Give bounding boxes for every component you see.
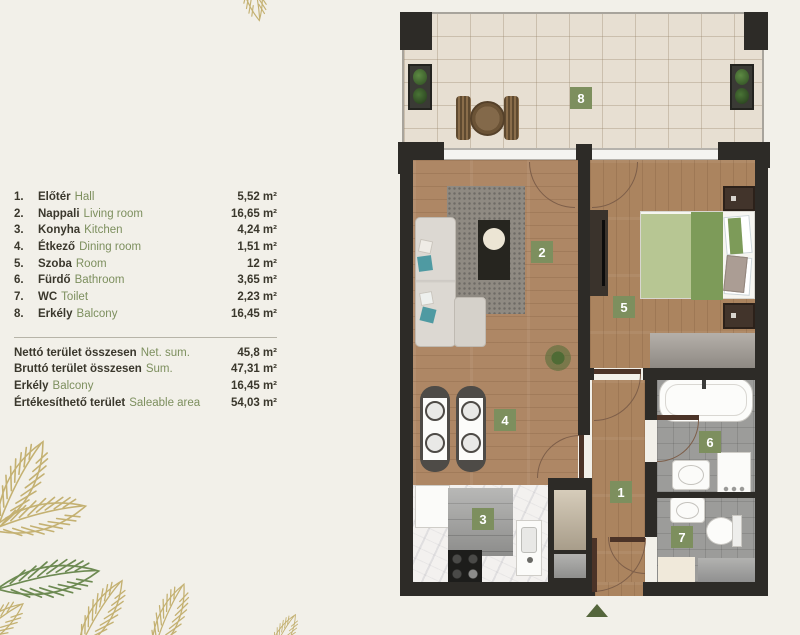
wall-right xyxy=(755,148,768,596)
legend-row-7: 7. WC Toilet 2,23 m² xyxy=(14,291,277,308)
legend-row-5: 5. Szoba Room 12 m² xyxy=(14,258,277,275)
hall-closet xyxy=(554,490,586,550)
balcony-post xyxy=(744,12,768,50)
room-name-hu: Szoba xyxy=(38,258,72,270)
sofa-pillow xyxy=(419,291,434,306)
legend-divider xyxy=(14,337,277,338)
balcony-chair xyxy=(504,96,519,140)
room-name-hu: Nappali xyxy=(38,208,80,220)
bathroom-sink xyxy=(672,460,710,490)
summary-area: 54,03 m² xyxy=(231,397,277,409)
summary-label-hu: Erkély xyxy=(14,380,49,392)
legend-row-2: 2. Nappali Living room 16,65 m² xyxy=(14,208,277,225)
wardrobe xyxy=(650,333,755,368)
room-name-en: Balcony xyxy=(77,308,118,320)
room-label-5: 5 xyxy=(613,296,635,318)
summary-label-hu: Bruttó terület összesen xyxy=(14,363,142,375)
room-label-3: 3 xyxy=(472,508,494,530)
room-number: 2. xyxy=(14,208,38,220)
room-label-2: 2 xyxy=(531,241,553,263)
summary-area: 47,31 m² xyxy=(231,363,277,375)
nightstand xyxy=(723,186,755,211)
summary-label-hu: Értékesíthető terület xyxy=(14,397,125,409)
bed-pillow-taupe xyxy=(723,255,748,293)
room-area: 12 m² xyxy=(247,258,277,270)
floor-plan: 1 2 3 4 5 6 7 8 xyxy=(398,8,770,622)
summary-label-en: Sum. xyxy=(146,363,173,375)
entrance-arrow-icon xyxy=(586,604,608,617)
bed xyxy=(640,211,755,299)
summary-label-en: Balcony xyxy=(53,380,94,392)
tv-cabinet xyxy=(590,210,608,296)
legend-row-3: 3. Konyha Kitchen 4,24 m² xyxy=(14,224,277,241)
plant-icon xyxy=(413,69,427,85)
sink-basin xyxy=(676,502,699,519)
wall-bedroom-hall xyxy=(578,368,594,380)
room-number: 6. xyxy=(14,274,38,286)
plant-icon xyxy=(545,345,571,371)
sofa xyxy=(415,217,456,347)
summary-row-net: Nettó terület összesen Net. sum. 45,8 m² xyxy=(14,347,277,364)
wall-bedroom-bath xyxy=(643,368,755,380)
room-name-en: Dining room xyxy=(79,241,141,253)
plate xyxy=(461,401,481,421)
room-name-hu: WC xyxy=(38,291,57,303)
washing-machine xyxy=(717,452,751,496)
wc-cabinet xyxy=(698,558,755,582)
floorplan-brochure-page: 1. Előtér Hall 5,52 m² 2. Nappali Living… xyxy=(0,0,800,635)
bathtub-inner xyxy=(665,384,747,416)
legend-row-1: 1. Előtér Hall 5,52 m² xyxy=(14,191,277,208)
nightstand xyxy=(723,303,755,329)
legend-row-8: 8. Erkély Balcony 16,45 m² xyxy=(14,308,277,325)
room-legend: 1. Előtér Hall 5,52 m² 2. Nappali Living… xyxy=(14,191,277,414)
room-number: 5. xyxy=(14,258,38,270)
wall-left xyxy=(400,154,413,596)
door-leaf xyxy=(610,537,645,542)
plate xyxy=(425,433,445,453)
room-name-en: Bathroom xyxy=(75,274,125,286)
room-name-en: Toilet xyxy=(61,291,88,303)
legend-row-4: 4. Étkező Dining room 1,51 m² xyxy=(14,241,277,258)
entry-mat xyxy=(658,557,695,582)
room-name-en: Living room xyxy=(84,208,143,220)
summary-area: 16,45 m² xyxy=(231,380,277,392)
balcony-chair xyxy=(456,96,471,140)
toilet-tank xyxy=(732,515,742,547)
room-name-en: Kitchen xyxy=(84,224,122,236)
room-area: 5,52 m² xyxy=(237,191,277,203)
room-label-4: 4 xyxy=(494,409,516,431)
room-name-hu: Étkező xyxy=(38,241,75,253)
plate xyxy=(461,433,481,453)
room-label-7: 7 xyxy=(671,526,693,548)
room-label-6: 6 xyxy=(699,431,721,453)
wall-dining-hall xyxy=(578,380,590,435)
room-number: 1. xyxy=(14,191,38,203)
summary-row-balcony: Erkély Balcony 16,45 m² xyxy=(14,380,277,397)
kitchen-cabinet xyxy=(415,485,450,528)
summary-area: 45,8 m² xyxy=(237,347,277,359)
wall-bath-wc xyxy=(657,492,755,498)
planter xyxy=(408,64,432,110)
faucet-icon xyxy=(527,557,533,563)
knob xyxy=(731,313,736,318)
room-label-1: 1 xyxy=(610,481,632,503)
knob xyxy=(731,196,736,201)
room-name-hu: Konyha xyxy=(38,224,80,236)
room-area: 16,45 m² xyxy=(231,308,277,320)
balcony-post xyxy=(400,12,432,50)
wall-bottom xyxy=(400,582,592,596)
room-area: 4,24 m² xyxy=(237,224,277,236)
stove xyxy=(448,550,482,582)
room-name-en: Room xyxy=(76,258,107,270)
room-name-hu: Erkély xyxy=(38,308,73,320)
room-area: 16,65 m² xyxy=(231,208,277,220)
room-number: 8. xyxy=(14,308,38,320)
legend-row-6: 6. Fürdő Bathroom 3,65 m² xyxy=(14,274,277,291)
room-number: 4. xyxy=(14,241,38,253)
room-name-hu: Előtér xyxy=(38,191,71,203)
summary-row-saleable: Értékesíthető terület Saleable area 54,0… xyxy=(14,397,277,414)
door-leaf xyxy=(594,369,641,374)
summary-label-en: Net. sum. xyxy=(141,347,190,359)
summary-label-en: Saleable area xyxy=(129,397,200,409)
plant-icon xyxy=(735,69,749,85)
sink-basin xyxy=(521,527,537,553)
sink-basin xyxy=(678,465,704,485)
sofa-chaise xyxy=(454,297,486,347)
plant-icon xyxy=(735,88,749,104)
sofa-pillow xyxy=(418,239,433,254)
room-name-hu: Fürdő xyxy=(38,274,71,286)
wall-hall-bath xyxy=(645,368,657,420)
room-number: 7. xyxy=(14,291,38,303)
kitchen-sink xyxy=(516,520,542,576)
door-leaf xyxy=(579,435,584,478)
summary-label-hu: Nettó terület összesen xyxy=(14,347,137,359)
door-leaf xyxy=(657,415,699,420)
room-name-en: Hall xyxy=(75,191,95,203)
wall-living-bedroom xyxy=(578,160,590,380)
coffee-table xyxy=(478,220,510,280)
room-area: 1,51 m² xyxy=(237,241,277,253)
tv-screen xyxy=(602,220,605,286)
room-area: 2,23 m² xyxy=(237,291,277,303)
balcony-table xyxy=(470,101,505,136)
bed-pillow-green xyxy=(728,218,743,255)
wc-sink xyxy=(670,497,705,523)
tray xyxy=(483,228,505,250)
wall-hall-bath xyxy=(645,462,657,537)
bed-blanket xyxy=(691,212,723,300)
plate xyxy=(425,401,445,421)
sofa-pillow xyxy=(417,255,433,272)
room-label-8: 8 xyxy=(570,87,592,109)
planter xyxy=(730,64,754,110)
hall-cabinet xyxy=(554,554,586,578)
plant-icon xyxy=(413,88,427,104)
wall-bottom xyxy=(646,582,768,596)
bed-blanket-light xyxy=(641,214,691,298)
room-area: 3,65 m² xyxy=(237,274,277,286)
entry-door-leaf xyxy=(592,538,597,592)
summary-row-gross: Bruttó terület összesen Sum. 47,31 m² xyxy=(14,363,277,380)
room-number: 3. xyxy=(14,224,38,236)
